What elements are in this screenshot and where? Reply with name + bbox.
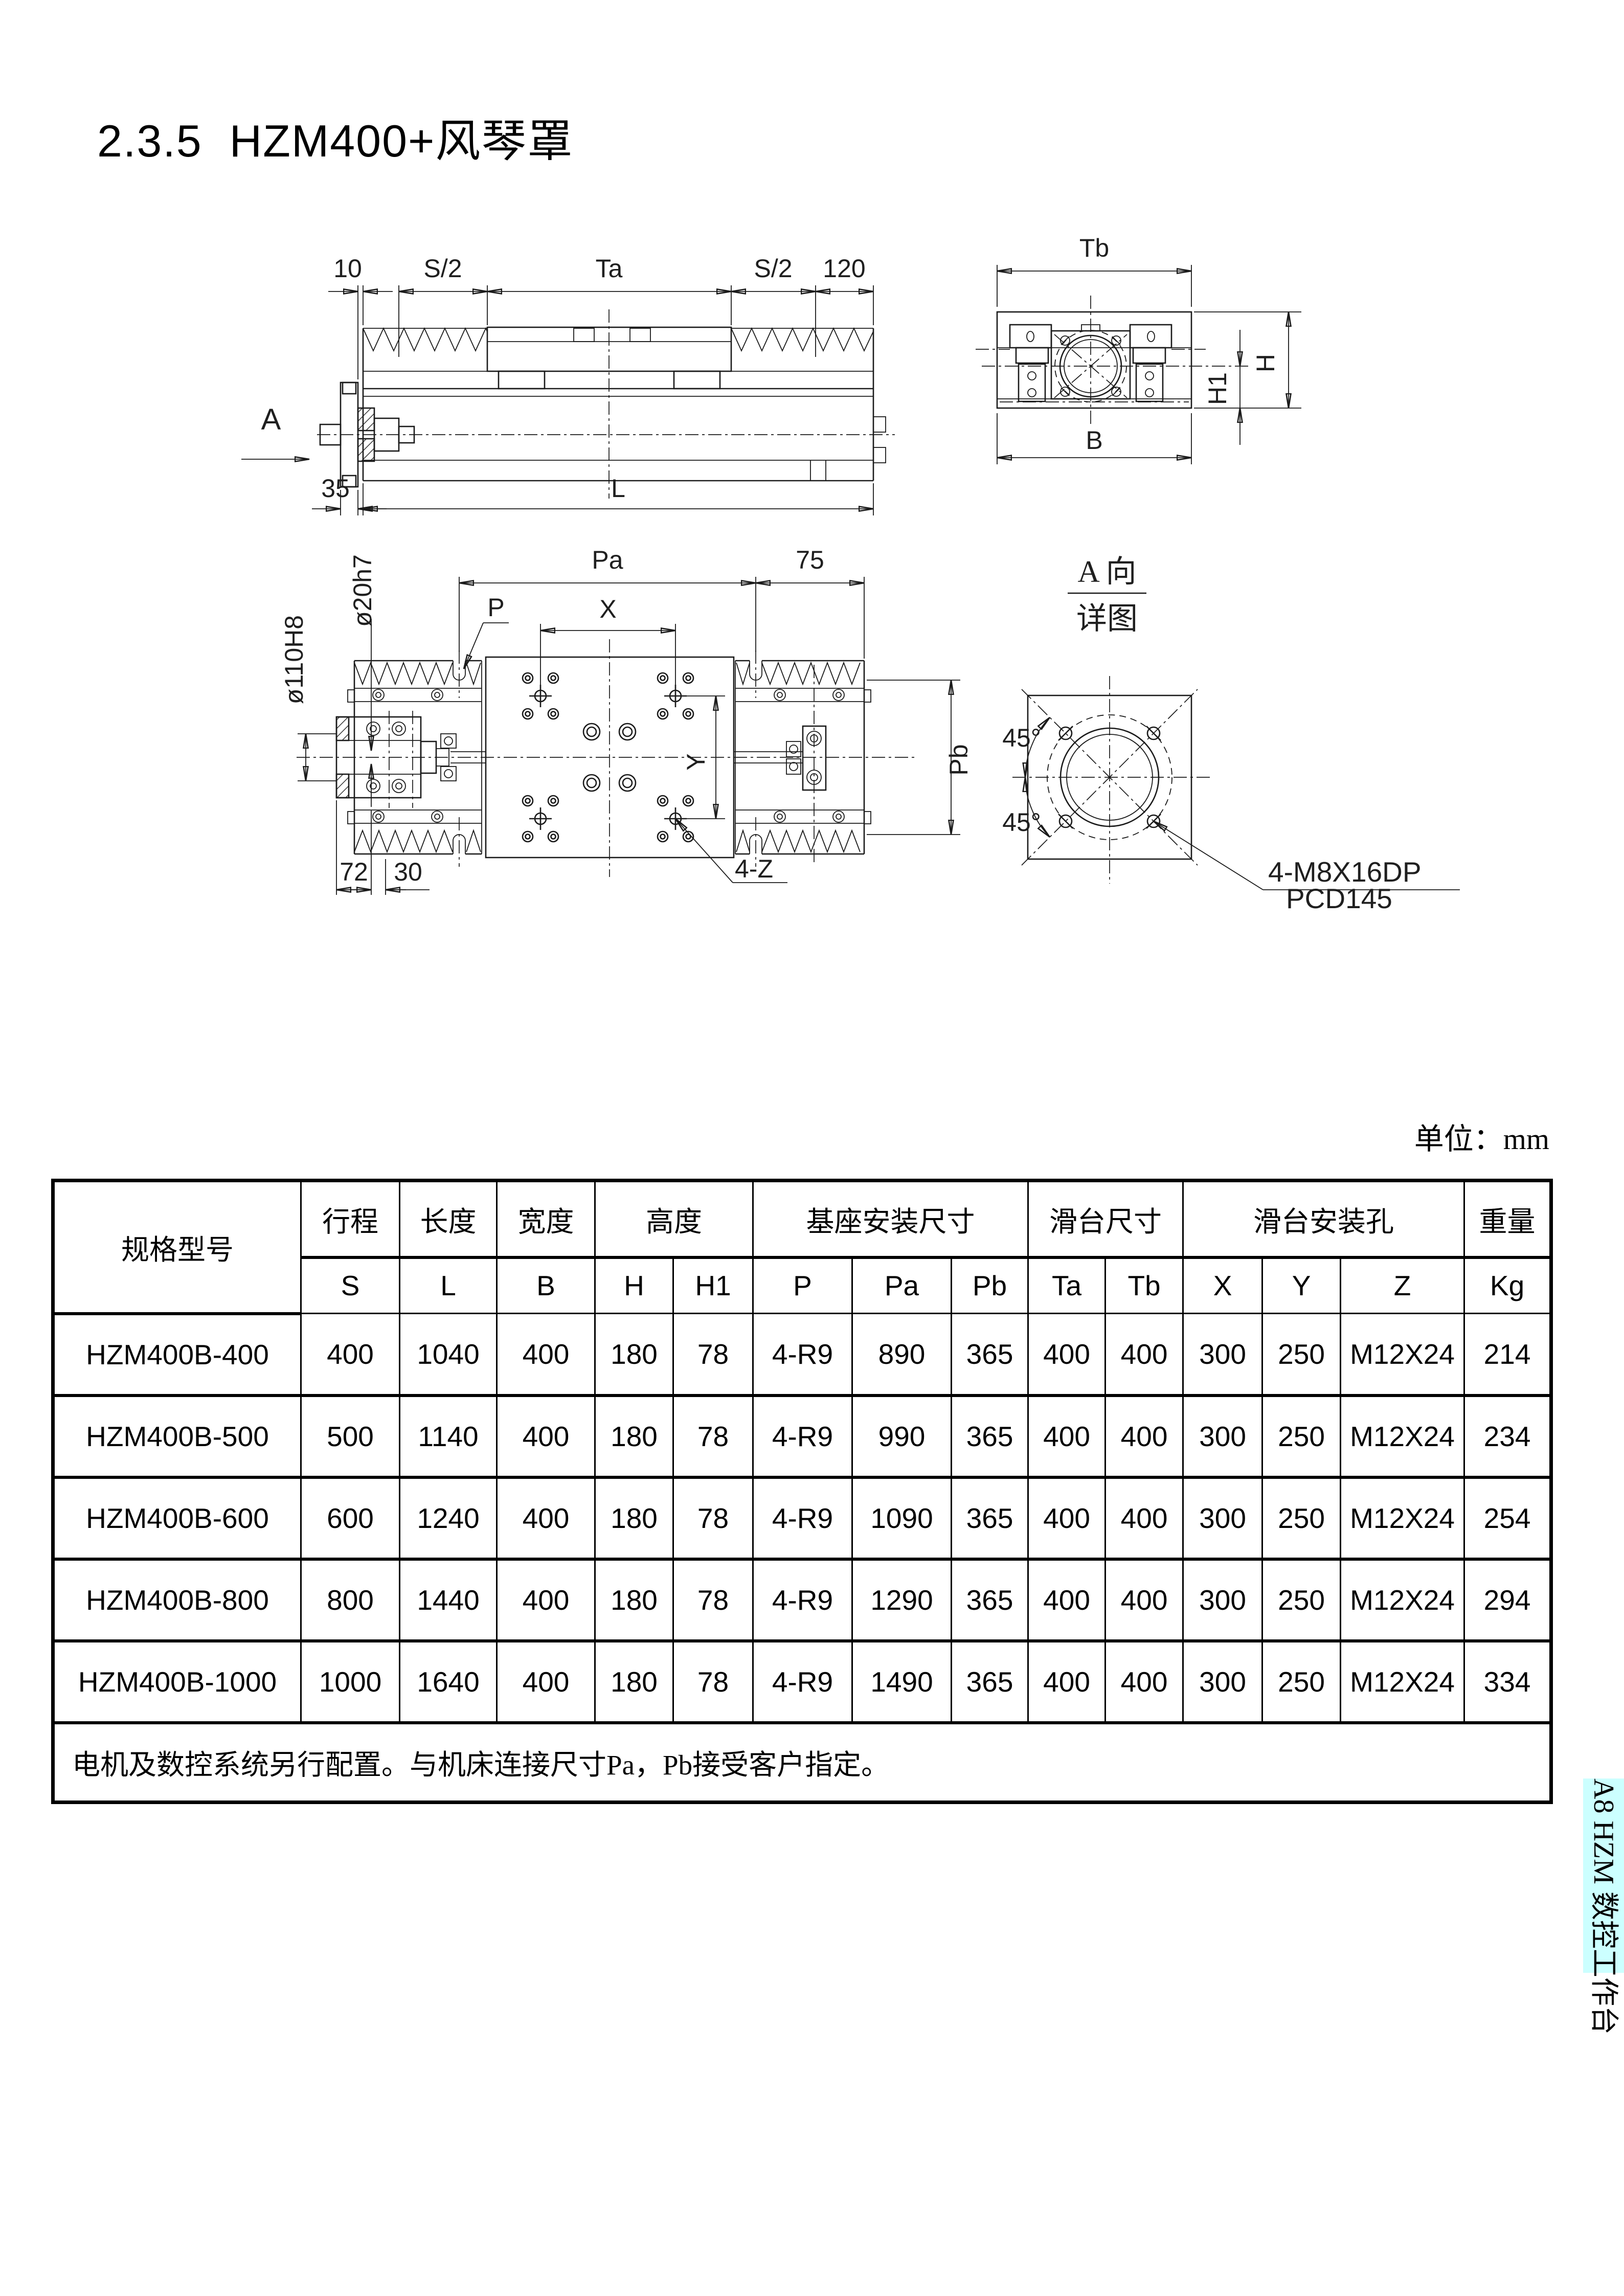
table-cell: 250 [1262,1477,1341,1559]
table-cell: 365 [952,1395,1028,1477]
col-header-model: 规格型号 [53,1181,301,1314]
col-header-ta: Ta [1028,1257,1106,1314]
dim-label-120: 120 [823,254,865,283]
table-cell: 1290 [852,1559,952,1641]
dim-label-l: L [611,474,625,503]
table-cell: 78 [673,1477,753,1559]
table-cell: 400 [497,1395,595,1477]
col-header-kg: Kg [1464,1257,1551,1314]
table-cell: HZM400B-1000 [53,1641,301,1723]
table-note-row: 电机及数控系统另行配置。与机床连接尺寸Pa，Pb接受客户指定。 [53,1723,1551,1803]
table-cell: 300 [1183,1395,1262,1477]
header-row-groups: 规格型号 行程 长度 宽度 高度 基座安装尺寸 滑台尺寸 滑台安装孔 重量 [53,1181,1551,1257]
table-cell: 180 [595,1559,673,1641]
table-cell: 1490 [852,1641,952,1723]
col-header-s: S [301,1257,400,1314]
col-header-p: P [753,1257,852,1314]
table-cell: 600 [301,1477,400,1559]
detail-title-line2: 详图 [1076,602,1138,636]
dim-label-30: 30 [394,858,422,886]
detail-view-title: A 向 详图 [1068,555,1146,636]
col-header-weight: 重量 [1464,1181,1551,1257]
table-row: HZM400B-1000 1000 1640 400 180 78 4-R9 1… [53,1641,1551,1723]
table-cell: 250 [1262,1314,1341,1395]
detail-view-body [1012,676,1212,884]
col-header-slide-holes: 滑台安装孔 [1183,1181,1464,1257]
table-cell: HZM400B-800 [53,1559,301,1641]
dim-label-b: B [1086,426,1102,455]
table-cell: 300 [1183,1477,1262,1559]
col-header-length: 长度 [400,1181,497,1257]
dim-label-x: X [599,595,616,623]
detail-view-drawing: A 向 详图 45° 45° [997,542,1560,910]
col-header-pa: Pa [852,1257,952,1314]
table-cell: 300 [1183,1559,1262,1641]
table-cell: 400 [1028,1641,1106,1723]
angle-label-upper: 45° [1002,724,1041,752]
table-cell: M12X24 [1341,1477,1464,1559]
dim-label-4z: 4-Z [735,854,773,883]
table-cell: M12X24 [1341,1559,1464,1641]
table-cell: M12X24 [1341,1314,1464,1395]
table-cell: HZM400B-600 [53,1477,301,1559]
table-cell: 78 [673,1314,753,1395]
table-cell: M12X24 [1341,1395,1464,1477]
dim-label-s2-left: S/2 [423,254,462,283]
table-row: HZM400B-500 500 1140 400 180 78 4-R9 990… [53,1395,1551,1477]
table-note: 电机及数控系统另行配置。与机床连接尺寸Pa，Pb接受客户指定。 [53,1723,1551,1803]
page: 2.3.5 HZM400+风琴罩 [0,0,1624,2296]
table-cell: 4-R9 [753,1314,852,1395]
dim-label-h: H [1251,354,1280,372]
spec-table: 规格型号 行程 长度 宽度 高度 基座安装尺寸 滑台尺寸 滑台安装孔 重量 S … [51,1179,1553,1804]
table-cell: M12X24 [1341,1641,1464,1723]
col-header-stroke: 行程 [301,1181,400,1257]
side-tab: A8 HZM 数控工作台 [1583,1779,1624,1973]
col-header-height: 高度 [595,1181,753,1257]
plan-view-body [297,639,915,877]
table-cell: 214 [1464,1314,1551,1395]
table-cell: 365 [952,1559,1028,1641]
col-header-width: 宽度 [497,1181,595,1257]
table-cell: 300 [1183,1314,1262,1395]
table-cell: 400 [1028,1559,1106,1641]
col-header-pb: Pb [952,1257,1028,1314]
table-cell: HZM400B-500 [53,1395,301,1477]
table-cell: 890 [852,1314,952,1395]
side-view-dimensions: 10 S/2 Ta S/2 120 A 35 L [241,254,873,515]
table-cell: 4-R9 [753,1559,852,1641]
dim-label-pa: Pa [592,546,623,574]
col-header-y: Y [1262,1257,1341,1314]
table-cell: 180 [595,1477,673,1559]
table-cell: 250 [1262,1559,1341,1641]
table-cell: 365 [952,1314,1028,1395]
dim-label-35: 35 [321,474,350,503]
side-view-body [317,309,895,499]
dim-label-pb: Pb [944,744,973,775]
spec-table-wrap: 规格型号 行程 长度 宽度 高度 基座安装尺寸 滑台尺寸 滑台安装孔 重量 S … [51,1179,1553,1804]
table-cell: 78 [673,1395,753,1477]
col-header-x: X [1183,1257,1262,1314]
dim-label-75: 75 [796,546,824,574]
table-cell: 250 [1262,1395,1341,1477]
table-cell: 1040 [400,1314,497,1395]
table-cell: 1640 [400,1641,497,1723]
unit-label: 单位：mm [51,1115,1549,1158]
table-cell: 78 [673,1559,753,1641]
page-title: 2.3.5 HZM400+风琴罩 [97,105,573,170]
dim-label-dia110: ø110H8 [280,615,308,704]
dim-label-tb: Tb [1079,234,1109,262]
table-cell: 400 [301,1314,400,1395]
table-row: HZM400B-400 400 1040 400 180 78 4-R9 890… [53,1314,1551,1395]
table-cell: 400 [1106,1559,1183,1641]
dim-label-y: Y [682,753,710,770]
col-header-tb: Tb [1106,1257,1183,1314]
table-cell: 400 [497,1314,595,1395]
table-row: HZM400B-600 600 1240 400 180 78 4-R9 109… [53,1477,1551,1559]
table-cell: 4-R9 [753,1477,852,1559]
table-cell: 400 [1106,1314,1183,1395]
col-header-h: H [595,1257,673,1314]
table-cell: 990 [852,1395,952,1477]
end-view-drawing: Tb B H H1 [961,220,1498,527]
table-cell: 334 [1464,1641,1551,1723]
table-row: HZM400B-800 800 1440 400 180 78 4-R9 129… [53,1559,1551,1641]
end-view-dimensions: Tb B H H1 [997,234,1301,464]
view-arrow-label: A [261,403,281,436]
table-cell: 400 [497,1559,595,1641]
table-cell: 1240 [400,1477,497,1559]
dim-label-s2-right: S/2 [754,254,792,283]
end-view-body [976,296,1250,425]
table-cell: 250 [1262,1641,1341,1723]
table-cell: 365 [952,1641,1028,1723]
table-cell: 78 [673,1641,753,1723]
side-tab-label: A8 HZM 数控工作台 [1583,1779,1624,1973]
table-cell: 400 [1028,1314,1106,1395]
table-cell: 400 [1106,1477,1183,1559]
table-cell: 1440 [400,1559,497,1641]
table-cell: 294 [1464,1559,1551,1641]
side-view-drawing: 10 S/2 Ta S/2 120 A 35 L [194,220,910,527]
col-header-z: Z [1341,1257,1464,1314]
table-cell: 800 [301,1559,400,1641]
table-cell: 400 [1106,1641,1183,1723]
table-cell: 180 [595,1395,673,1477]
dim-label-h1: H1 [1203,372,1232,405]
col-header-slide-size: 滑台尺寸 [1028,1181,1183,1257]
table-cell: 400 [1028,1395,1106,1477]
dim-label-dia20: ø20h7 [348,554,377,627]
col-header-b: B [497,1257,595,1314]
table-cell: HZM400B-400 [53,1314,301,1395]
table-cell: 180 [595,1314,673,1395]
col-header-h1: H1 [673,1257,753,1314]
table-cell: 500 [301,1395,400,1477]
dim-label-72: 72 [340,858,368,886]
table-cell: 254 [1464,1477,1551,1559]
table-cell: 1090 [852,1477,952,1559]
detail-note-line2: PCD145 [1286,883,1392,914]
table-cell: 365 [952,1477,1028,1559]
table-cell: 400 [1106,1395,1183,1477]
table-cell: 400 [497,1477,595,1559]
table-cell: 234 [1464,1395,1551,1477]
dim-label-10: 10 [333,254,362,283]
angle-label-lower: 45° [1002,808,1041,837]
plan-view-drawing: Pa 75 P X Y Pb ø20h7 [276,537,982,905]
dim-label-p: P [487,593,504,622]
col-header-base-mount: 基座安装尺寸 [753,1181,1028,1257]
table-cell: 180 [595,1641,673,1723]
table-cell: 4-R9 [753,1641,852,1723]
table-cell: 400 [497,1641,595,1723]
table-cell: 300 [1183,1641,1262,1723]
table-cell: 1140 [400,1395,497,1477]
dim-label-ta: Ta [596,254,623,283]
table-cell: 400 [1028,1477,1106,1559]
col-header-l: L [400,1257,497,1314]
table-cell: 1000 [301,1641,400,1723]
detail-title-line1: A 向 [1077,555,1136,589]
table-cell: 4-R9 [753,1395,852,1477]
